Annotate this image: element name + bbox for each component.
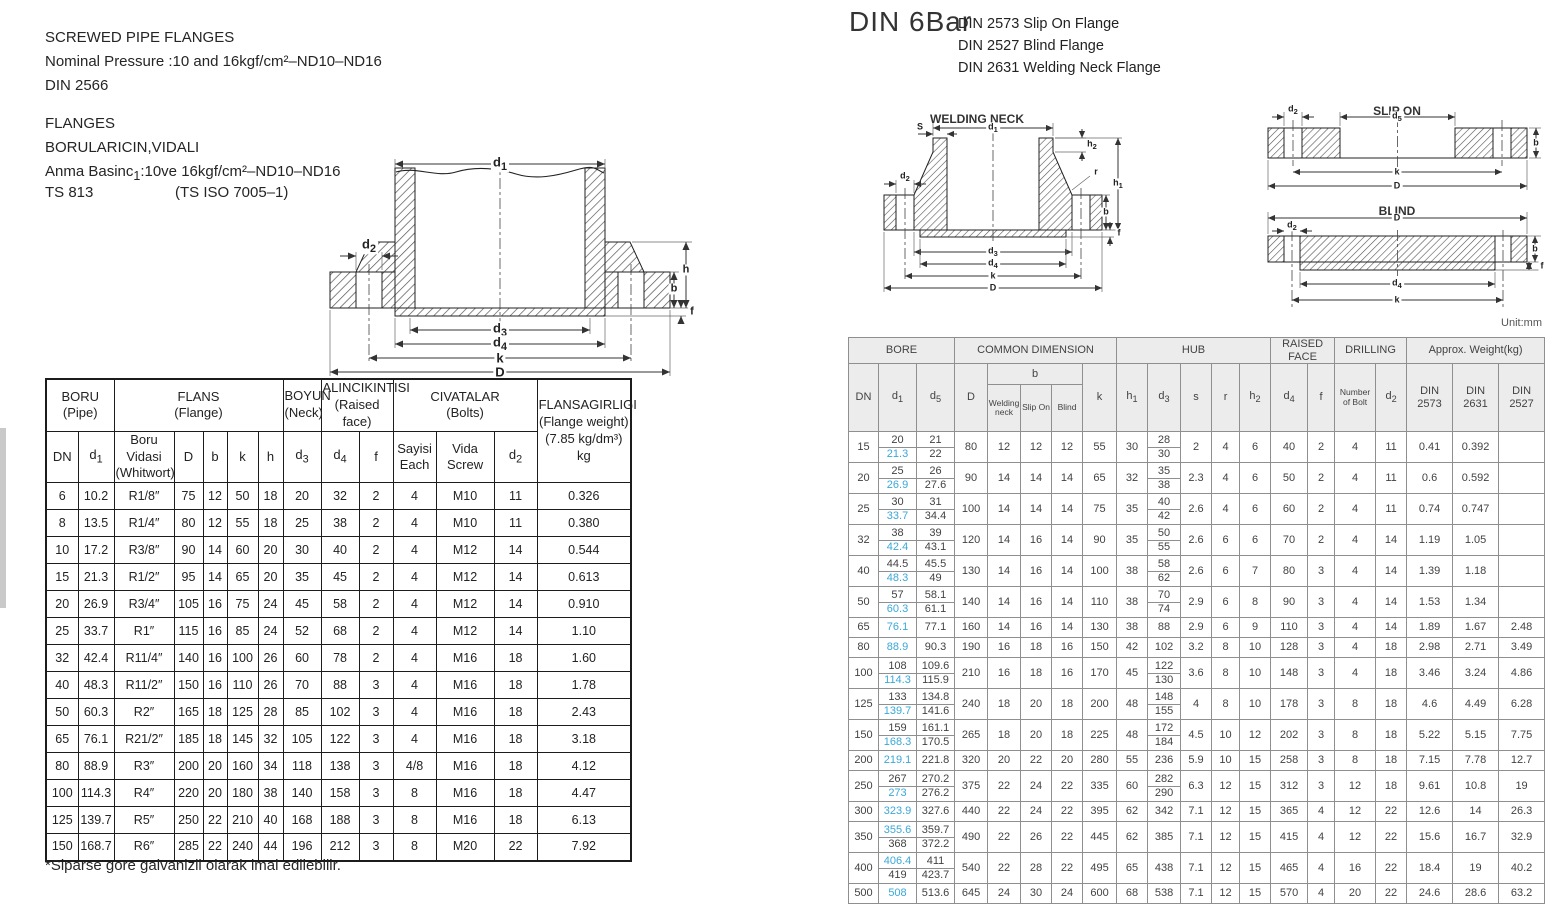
table-cell: 2.3 — [1181, 463, 1212, 494]
table-row: 400406.4419411423.7540222822495654387.11… — [849, 853, 1545, 884]
header-cell: Weldingneck — [988, 385, 1021, 432]
table-cell: 18 — [988, 720, 1021, 751]
table-cell: 65 — [849, 618, 879, 638]
table-cell: 540 — [955, 853, 988, 884]
table-cell: 4 — [1335, 658, 1376, 689]
split-cell-value: 155 — [1148, 705, 1180, 718]
table-row: 152021.3212280121212553028302464024110.4… — [849, 432, 1545, 463]
table-cell: 40 — [321, 537, 359, 564]
table-row: 4044.548.345.5491301416141003858622.6678… — [849, 556, 1545, 587]
table-cell: 4 — [1335, 494, 1376, 525]
table-cell: 100 — [227, 645, 258, 672]
dim-label-D: D — [988, 284, 999, 293]
header-cell: d4 — [1271, 364, 1308, 432]
table-cell — [1499, 525, 1545, 556]
page-edge-strip — [0, 428, 6, 608]
table-cell: 110 — [1083, 587, 1117, 618]
table-cell: 280 — [1083, 751, 1117, 771]
split-cell: 7074 — [1148, 589, 1180, 615]
table-cell: 14 — [988, 494, 1021, 525]
table-cell: R3″ — [114, 753, 174, 780]
table-cell: R2″ — [114, 699, 174, 726]
title-line: BORULARICIN,VIDALI — [45, 136, 340, 160]
table-cell: 4.6 — [1407, 689, 1453, 720]
table-cell: 12.6 — [1407, 802, 1453, 822]
table-cell: 10.2 — [78, 483, 114, 510]
table-cell: 88.9 — [879, 638, 917, 658]
table-row: 100114.3R4″220201803814015838M16184.47 — [46, 780, 631, 807]
table-cell: 3.6 — [1181, 658, 1212, 689]
table-cell: 158 — [321, 780, 359, 807]
table-cell: 62 — [1117, 802, 1148, 822]
split-cell-value: 20 — [879, 434, 916, 448]
table-cell: 3.24 — [1453, 658, 1499, 689]
table-cell: 385 — [1148, 822, 1181, 853]
table-cell: 4 — [1212, 432, 1240, 463]
header-cell: d3 — [283, 431, 321, 483]
table-cell: 16 — [203, 645, 227, 672]
table-cell: 18 — [1376, 720, 1407, 751]
table-cell: 16 — [1052, 658, 1083, 689]
header-cell: k — [1083, 364, 1117, 432]
table-cell: 40.2 — [1499, 853, 1545, 884]
table-cell: 8 — [1335, 720, 1376, 751]
screwed-flange-table: BORU(Pipe)FLANS(Flange)BOYUN(Neck)ALINCI… — [45, 378, 632, 862]
table-cell: 3 — [1308, 720, 1335, 751]
table-cell: 15 — [1240, 802, 1271, 822]
table-cell: 21.3 — [78, 564, 114, 591]
table-cell: R1″ — [114, 618, 174, 645]
din-standards-list: DIN 2573 Slip On Flange DIN 2527 Blind F… — [958, 13, 1161, 79]
table-cell: 312 — [1271, 771, 1308, 802]
header-cell: DIN2527 — [1499, 364, 1545, 432]
table-cell: 8 — [1212, 689, 1240, 720]
table-row: 2026.9R3/4″105167524455824M12140.910 — [46, 591, 631, 618]
table-cell: 2526.9 — [879, 463, 917, 494]
split-cell: 3538 — [1148, 465, 1180, 491]
split-cell-value: 108 — [879, 660, 916, 674]
table-cell: 2 — [1308, 525, 1335, 556]
table-cell: 18 — [1376, 751, 1407, 771]
dim-label-d4: d4 — [1390, 278, 1404, 289]
table-cell: 0.74 — [1407, 494, 1453, 525]
table-cell: 150 — [174, 672, 203, 699]
table-cell: 6 — [1240, 432, 1271, 463]
table-cell: 7074 — [1148, 587, 1181, 618]
table-cell: 76.1 — [78, 726, 114, 753]
table-cell: 88 — [1148, 618, 1181, 638]
table-cell: 14 — [1376, 587, 1407, 618]
table-cell: 4.86 — [1499, 658, 1545, 689]
split-cell-value: 43.1 — [917, 541, 954, 554]
split-cell-value: 28 — [1148, 434, 1180, 448]
table-row: 6576.177.116014161413038882.96911034141.… — [849, 618, 1545, 638]
table-row: 300323.9327.6440222422395623427.11215365… — [849, 802, 1545, 822]
table-cell: 14 — [1021, 463, 1052, 494]
table-cell: 45 — [1117, 658, 1148, 689]
table-cell: 22 — [1021, 751, 1052, 771]
table-cell: 2 — [1308, 463, 1335, 494]
table-cell: 14 — [1021, 494, 1052, 525]
table-cell: 15 — [46, 564, 78, 591]
table-cell: 28 — [258, 699, 283, 726]
header-cell: r — [1212, 364, 1240, 432]
dim-label-k: k — [494, 352, 505, 365]
table-cell: 7.1 — [1181, 802, 1212, 822]
table-cell: 65 — [1083, 463, 1117, 494]
table-row: 202526.92627.690141414653235382.34650241… — [849, 463, 1545, 494]
table-cell: 250 — [849, 771, 879, 802]
split-cell-value: 40 — [1148, 496, 1180, 510]
table-cell: 225 — [1083, 720, 1117, 751]
table-cell: 2.98 — [1407, 638, 1453, 658]
table-cell: 415 — [1271, 822, 1308, 853]
table-cell: 0.326 — [537, 483, 631, 510]
table-cell: 35 — [1117, 525, 1148, 556]
table-cell: 490 — [955, 822, 988, 853]
table-cell — [1499, 556, 1545, 587]
table-cell: 12 — [1212, 771, 1240, 802]
table-cell: M10 — [436, 483, 494, 510]
table-cell: 75 — [227, 591, 258, 618]
split-cell-value: 62 — [1148, 572, 1180, 585]
dim-label-D: D — [1392, 182, 1403, 191]
table-cell: 22 — [988, 853, 1021, 884]
table-cell: 50 — [46, 699, 78, 726]
dim-label-b: b — [1531, 139, 1541, 148]
table-cell: 2.6 — [1181, 494, 1212, 525]
table-cell: 270.2276.2 — [917, 771, 955, 802]
split-cell-value: 74 — [1148, 603, 1180, 616]
table-cell: 2.9 — [1181, 618, 1212, 638]
table-cell: 32 — [1117, 463, 1148, 494]
table-cell: 12 — [988, 432, 1021, 463]
table-cell: 18 — [494, 645, 537, 672]
table-cell: 210 — [227, 807, 258, 834]
header-cell: BORE — [849, 338, 955, 364]
table-row: 505760.358.161.11401416141103870742.9689… — [849, 587, 1545, 618]
table-cell: 50 — [227, 483, 258, 510]
header-cell: DIN2573 — [1407, 364, 1453, 432]
table-cell: 18 — [203, 726, 227, 753]
split-cell: 282290 — [1148, 773, 1180, 799]
dim-label-f: f — [688, 307, 696, 318]
table-cell: 18 — [1021, 658, 1052, 689]
split-cell: 148155 — [1148, 691, 1180, 717]
table-cell: 120 — [955, 525, 988, 556]
table-cell: M16 — [436, 672, 494, 699]
table-cell: 8 — [393, 780, 436, 807]
table-cell: 100 — [1083, 556, 1117, 587]
table-cell: 9 — [1240, 618, 1271, 638]
table-cell: 1.67 — [1453, 618, 1499, 638]
split-cell-value: 114.3 — [879, 674, 916, 687]
table-cell: 38 — [321, 510, 359, 537]
table-cell: 80 — [955, 432, 988, 463]
table-cell: 15 — [1240, 751, 1271, 771]
table-cell: 55 — [1117, 751, 1148, 771]
table-cell: 105 — [283, 726, 321, 753]
title-line: Nominal Pressure :10 and 16kgf/cm²–ND10–… — [45, 50, 382, 74]
table-row: 350355.6368359.7372.2490222622445623857.… — [849, 822, 1545, 853]
table-cell: 25 — [849, 494, 879, 525]
table-cell: 4 — [1335, 556, 1376, 587]
table-cell: 24 — [258, 618, 283, 645]
table-cell: 350 — [849, 822, 879, 853]
table-cell: 38 — [1117, 587, 1148, 618]
table-cell: 0.544 — [537, 537, 631, 564]
dim-label-f: f — [1116, 229, 1123, 238]
table-cell: 16 — [1021, 587, 1052, 618]
table-cell: 50 — [1271, 463, 1308, 494]
table-cell: 6 — [1212, 556, 1240, 587]
table-cell: 445 — [1083, 822, 1117, 853]
table-cell: 11 — [1376, 463, 1407, 494]
table-cell: 4 — [1308, 853, 1335, 884]
split-cell-value: 270.2 — [917, 773, 954, 787]
split-cell-value: 34.4 — [917, 510, 954, 523]
table-cell: 6 — [1212, 525, 1240, 556]
table-cell: 1.60 — [537, 645, 631, 672]
table-cell: 40 — [1271, 432, 1308, 463]
header-cell: Slip On — [1021, 385, 1052, 432]
header-cell: CIVATALAR(Bolts) — [393, 379, 537, 431]
split-cell-value: 282 — [1148, 773, 1180, 787]
table-cell: 10 — [1212, 751, 1240, 771]
split-cell: 4042 — [1148, 496, 1180, 522]
table-cell: 11 — [1376, 432, 1407, 463]
table-cell: 236 — [1148, 751, 1181, 771]
header-cell: d1 — [879, 364, 917, 432]
table-cell: 70 — [1271, 525, 1308, 556]
table-cell: 4.49 — [1453, 689, 1499, 720]
dim-label-d1: d1 — [986, 122, 1000, 133]
table-cell: 14 — [1052, 556, 1083, 587]
table-cell: 188 — [321, 807, 359, 834]
table-cell: 40 — [46, 672, 78, 699]
split-cell: 172184 — [1148, 722, 1180, 748]
table-cell: 14 — [1052, 587, 1083, 618]
table-cell: 2 — [1308, 432, 1335, 463]
table-cell: 20 — [1335, 884, 1376, 904]
table-cell: 26 — [1021, 822, 1052, 853]
table-cell: 335 — [1083, 771, 1117, 802]
table-cell: 44.548.3 — [879, 556, 917, 587]
split-cell-value: 419 — [879, 869, 916, 882]
table-cell: 90 — [1271, 587, 1308, 618]
table-cell: 0.592 — [1453, 463, 1499, 494]
split-cell-value: 42 — [1148, 510, 1180, 523]
table-cell: 2122 — [917, 432, 955, 463]
header-cell: COMMON DIMENSION — [955, 338, 1117, 364]
table-cell: 22 — [1052, 771, 1083, 802]
table-cell: 60.3 — [78, 699, 114, 726]
table-cell: 38 — [1117, 618, 1148, 638]
table-cell: 3.18 — [537, 726, 631, 753]
table-cell: 3842.4 — [879, 525, 917, 556]
split-cell-value: 359.7 — [917, 824, 954, 838]
header-cell: d4 — [321, 431, 359, 483]
table-cell: 202 — [1271, 720, 1308, 751]
blind-drawing: BLIND — [1250, 202, 1545, 322]
split-cell: 5055 — [1148, 527, 1180, 553]
split-cell-value: 58.1 — [917, 589, 954, 603]
table-cell: 55 — [1083, 432, 1117, 463]
table-cell: 8 — [393, 807, 436, 834]
table-cell: 4 — [1335, 432, 1376, 463]
table-cell: 90 — [174, 537, 203, 564]
table-cell: 5.15 — [1453, 720, 1499, 751]
table-cell: 6 — [1240, 494, 1271, 525]
table-cell: 25 — [46, 618, 78, 645]
table-cell: 18 — [258, 510, 283, 537]
table-cell: 60 — [1117, 771, 1148, 802]
table-cell: 24 — [1021, 771, 1052, 802]
table-cell: 18 — [988, 689, 1021, 720]
table-cell: 14 — [203, 564, 227, 591]
table-cell: 62 — [1117, 822, 1148, 853]
table-cell: 22 — [494, 834, 537, 861]
table-cell: 1.10 — [537, 618, 631, 645]
table-cell: 80 — [849, 638, 879, 658]
table-cell: 10 — [1240, 658, 1271, 689]
table-cell: 6 — [46, 483, 78, 510]
table-cell: 3.46 — [1407, 658, 1453, 689]
table-cell: 219.1 — [879, 751, 917, 771]
table-cell: 645 — [955, 884, 988, 904]
table-row: 500508513.6645243024600685387.1121557042… — [849, 884, 1545, 904]
table-cell: R1/2″ — [114, 564, 174, 591]
table-cell: 22 — [988, 822, 1021, 853]
table-cell: 7.1 — [1181, 822, 1212, 853]
table-cell: 26.9 — [78, 591, 114, 618]
table-cell: 75 — [1083, 494, 1117, 525]
header-cell: VidaScrew — [436, 431, 494, 483]
table-cell: 20 — [258, 564, 283, 591]
split-cell-value: 58 — [1148, 558, 1180, 572]
table-cell: 2021.3 — [879, 432, 917, 463]
table-cell: 7.15 — [1407, 751, 1453, 771]
header-cell: Blind — [1052, 385, 1083, 432]
table-cell: 20 — [46, 591, 78, 618]
table-cell: 16 — [1021, 556, 1052, 587]
din-standard-line: DIN 2573 Slip On Flange — [958, 13, 1161, 35]
split-cell-value: 122 — [1148, 660, 1180, 674]
table-cell: 15 — [1240, 853, 1271, 884]
table-cell: 110 — [1271, 618, 1308, 638]
header-cell: b — [203, 431, 227, 483]
table-cell: 24 — [1052, 884, 1083, 904]
table-cell: 22 — [1376, 884, 1407, 904]
split-cell-value: 50 — [1148, 527, 1180, 541]
table-cell: 18 — [258, 483, 283, 510]
table-cell: 3134.4 — [917, 494, 955, 525]
table-cell: 7.1 — [1181, 853, 1212, 884]
table-cell: 10 — [1240, 689, 1271, 720]
split-cell-value: 141.6 — [917, 705, 954, 718]
table-cell: 14 — [1052, 618, 1083, 638]
table-cell: 1.78 — [537, 672, 631, 699]
table-cell: 115 — [174, 618, 203, 645]
table-cell: 26 — [258, 672, 283, 699]
split-cell-value: 22 — [917, 448, 954, 461]
table-cell: 134.8141.6 — [917, 689, 955, 720]
split-cell-value: 26 — [917, 465, 954, 479]
header-cell: b — [988, 364, 1083, 385]
header-cell: SayisiEach — [393, 431, 436, 483]
header-cell: d2 — [1376, 364, 1407, 432]
table-cell: 48.3 — [78, 672, 114, 699]
table-cell: 2.9 — [1181, 587, 1212, 618]
table-cell: 327.6 — [917, 802, 955, 822]
table-cell: 160 — [955, 618, 988, 638]
table-cell: 75 — [174, 483, 203, 510]
table-cell: 4 — [1308, 822, 1335, 853]
table-cell: 100 — [955, 494, 988, 525]
table-cell: M16 — [436, 645, 494, 672]
table-cell: 85 — [283, 699, 321, 726]
table-cell: R3/4″ — [114, 591, 174, 618]
split-cell: 45.549 — [917, 558, 954, 584]
table-cell: 16 — [203, 591, 227, 618]
header-cell: d1 — [78, 431, 114, 483]
left-heading: SCREWED PIPE FLANGES Nominal Pressure :1… — [45, 26, 382, 98]
table-cell: 190 — [955, 638, 988, 658]
table-cell: 14 — [1376, 556, 1407, 587]
split-cell-value: 38 — [1148, 479, 1180, 492]
table-cell: 3 — [1308, 587, 1335, 618]
table-cell: 35 — [283, 564, 321, 591]
table-cell: 4 — [1335, 587, 1376, 618]
table-cell: 148 — [1271, 658, 1308, 689]
table-cell: 125 — [227, 699, 258, 726]
dim-label-d2: d2 — [898, 171, 912, 182]
table-cell: 48 — [1117, 689, 1148, 720]
split-cell: 133139.7 — [879, 691, 916, 717]
table-cell: 12 — [1335, 771, 1376, 802]
table-cell: 3 — [1308, 618, 1335, 638]
table-cell: 80 — [46, 753, 78, 780]
table-cell: 34 — [258, 753, 283, 780]
din-6bar-table: BORECOMMON DIMENSIONHUBRAISED FACEDRILLI… — [848, 337, 1545, 904]
table-cell: 18 — [494, 672, 537, 699]
table-cell: 355.6368 — [879, 822, 917, 853]
table-cell: 40 — [258, 807, 283, 834]
table-cell: 42.4 — [78, 645, 114, 672]
table-row: BORU(Pipe)FLANS(Flange)BOYUN(Neck)ALINCI… — [46, 379, 631, 431]
table-cell: 2830 — [1148, 432, 1181, 463]
table-cell: R4″ — [114, 780, 174, 807]
table-cell: 58 — [321, 591, 359, 618]
table-cell: 122 — [321, 726, 359, 753]
table-cell: 50 — [849, 587, 879, 618]
table-cell: 108114.3 — [879, 658, 917, 689]
split-cell-value: 423.7 — [917, 869, 954, 882]
table-cell: 100 — [849, 658, 879, 689]
table-cell: 1.34 — [1453, 587, 1499, 618]
table-cell: 24 — [1021, 802, 1052, 822]
table-cell: 406.4419 — [879, 853, 917, 884]
table-cell: 3 — [359, 753, 393, 780]
split-cell-value: 159 — [879, 722, 916, 736]
split-cell-value: 39 — [917, 527, 954, 541]
split-cell: 2122 — [917, 434, 954, 460]
table-cell: 570 — [1271, 884, 1308, 904]
table-cell: 14 — [1052, 463, 1083, 494]
table-cell: 16 — [1335, 853, 1376, 884]
dim-label-D: D — [493, 366, 506, 379]
table-cell: 0.910 — [537, 591, 631, 618]
